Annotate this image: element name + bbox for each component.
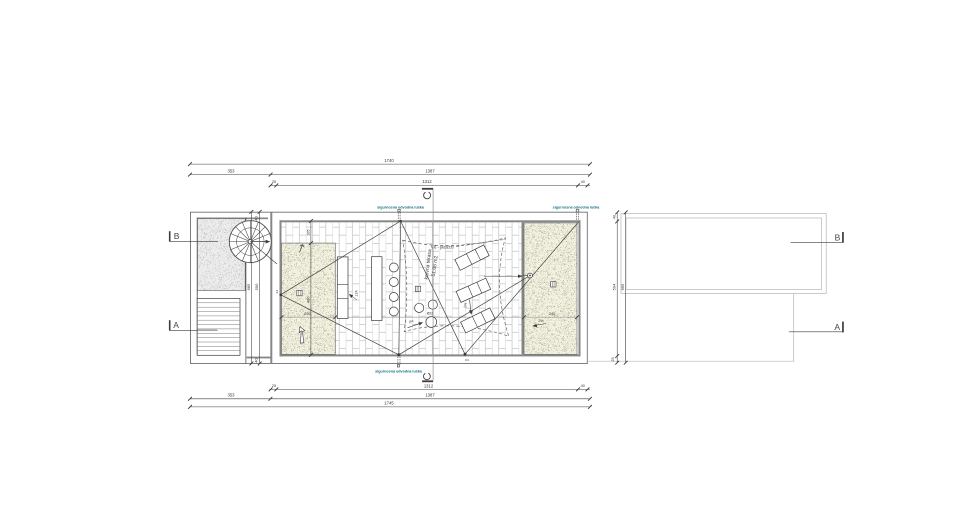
svg-text:K3: K3 [465, 358, 469, 362]
svg-text:2%: 2% [538, 319, 544, 323]
svg-text:B: B [835, 232, 841, 242]
svg-text:353: 353 [228, 168, 236, 173]
svg-text:594: 594 [612, 283, 617, 290]
svg-text:250: 250 [304, 311, 311, 316]
svg-text:25: 25 [272, 384, 276, 388]
svg-text:665: 665 [620, 283, 625, 290]
svg-text:sigurnosna odvodna lučka: sigurnosna odvodna lučka [375, 369, 423, 373]
svg-text:240: 240 [549, 311, 556, 316]
svg-text:40: 40 [581, 384, 585, 388]
svg-text:B: B [174, 231, 180, 241]
svg-text:sigurnosna odvodna lučka: sigurnosna odvodna lučka [377, 205, 425, 209]
svg-text:1312: 1312 [422, 179, 432, 184]
svg-text:40: 40 [581, 180, 585, 184]
svg-text:590: 590 [254, 283, 259, 290]
svg-text:1312: 1312 [424, 384, 434, 389]
svg-text:685: 685 [246, 283, 251, 290]
svg-text:480: 480 [305, 296, 310, 303]
svg-text:25: 25 [611, 357, 615, 361]
svg-text:1387: 1387 [425, 168, 435, 173]
svg-text:105: 105 [305, 229, 310, 236]
svg-text:25: 25 [272, 180, 276, 184]
svg-text:sigurnosna odvodna lučka: sigurnosna odvodna lučka [553, 205, 601, 209]
svg-text:353: 353 [228, 393, 236, 398]
svg-text:40: 40 [613, 215, 617, 219]
svg-text:40: 40 [254, 216, 259, 221]
svg-text:A: A [173, 320, 179, 330]
svg-text:A: A [834, 322, 840, 332]
svg-text:1387: 1387 [425, 393, 435, 398]
svg-text:K1: K1 [275, 289, 279, 293]
svg-text:Ø22: Ø22 [427, 311, 434, 315]
svg-text:V6 - jacuzzi: V6 - jacuzzi [431, 244, 454, 249]
svg-text:1745: 1745 [384, 401, 394, 406]
svg-text:1740: 1740 [384, 158, 394, 163]
svg-text:40: 40 [254, 358, 259, 363]
svg-text:124: 124 [355, 290, 359, 296]
